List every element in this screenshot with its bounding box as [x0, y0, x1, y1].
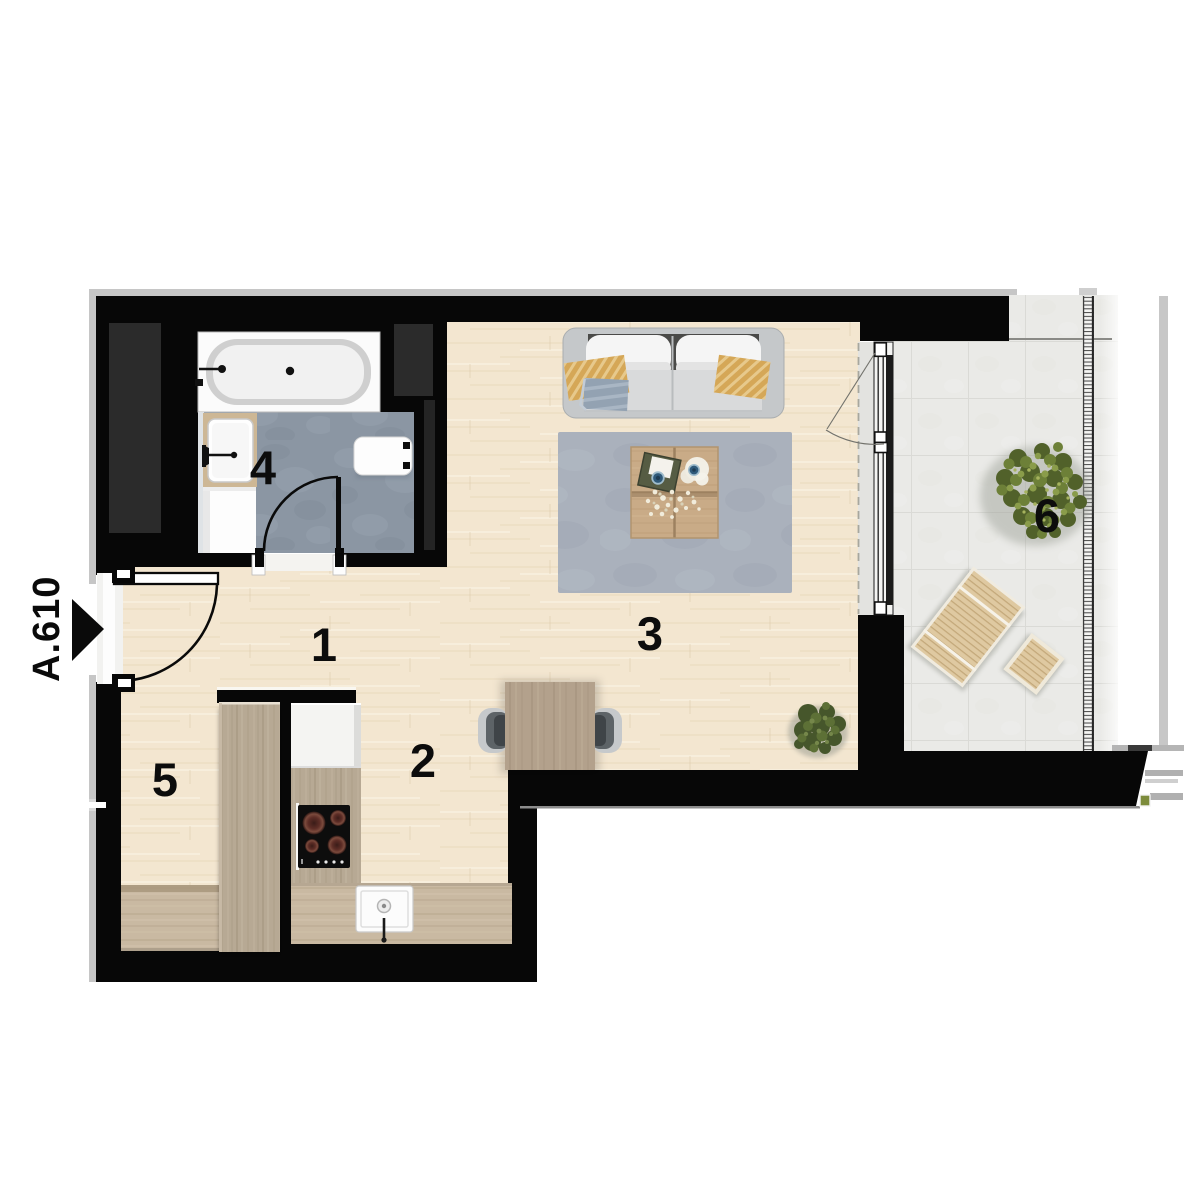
svg-text:4: 4	[250, 441, 276, 494]
svg-text:1: 1	[311, 618, 337, 671]
svg-text:5: 5	[152, 753, 178, 806]
svg-text:6: 6	[1034, 489, 1060, 542]
svg-text:A.610: A.610	[26, 576, 68, 682]
svg-text:2: 2	[410, 734, 436, 787]
svg-text:3: 3	[637, 607, 663, 660]
